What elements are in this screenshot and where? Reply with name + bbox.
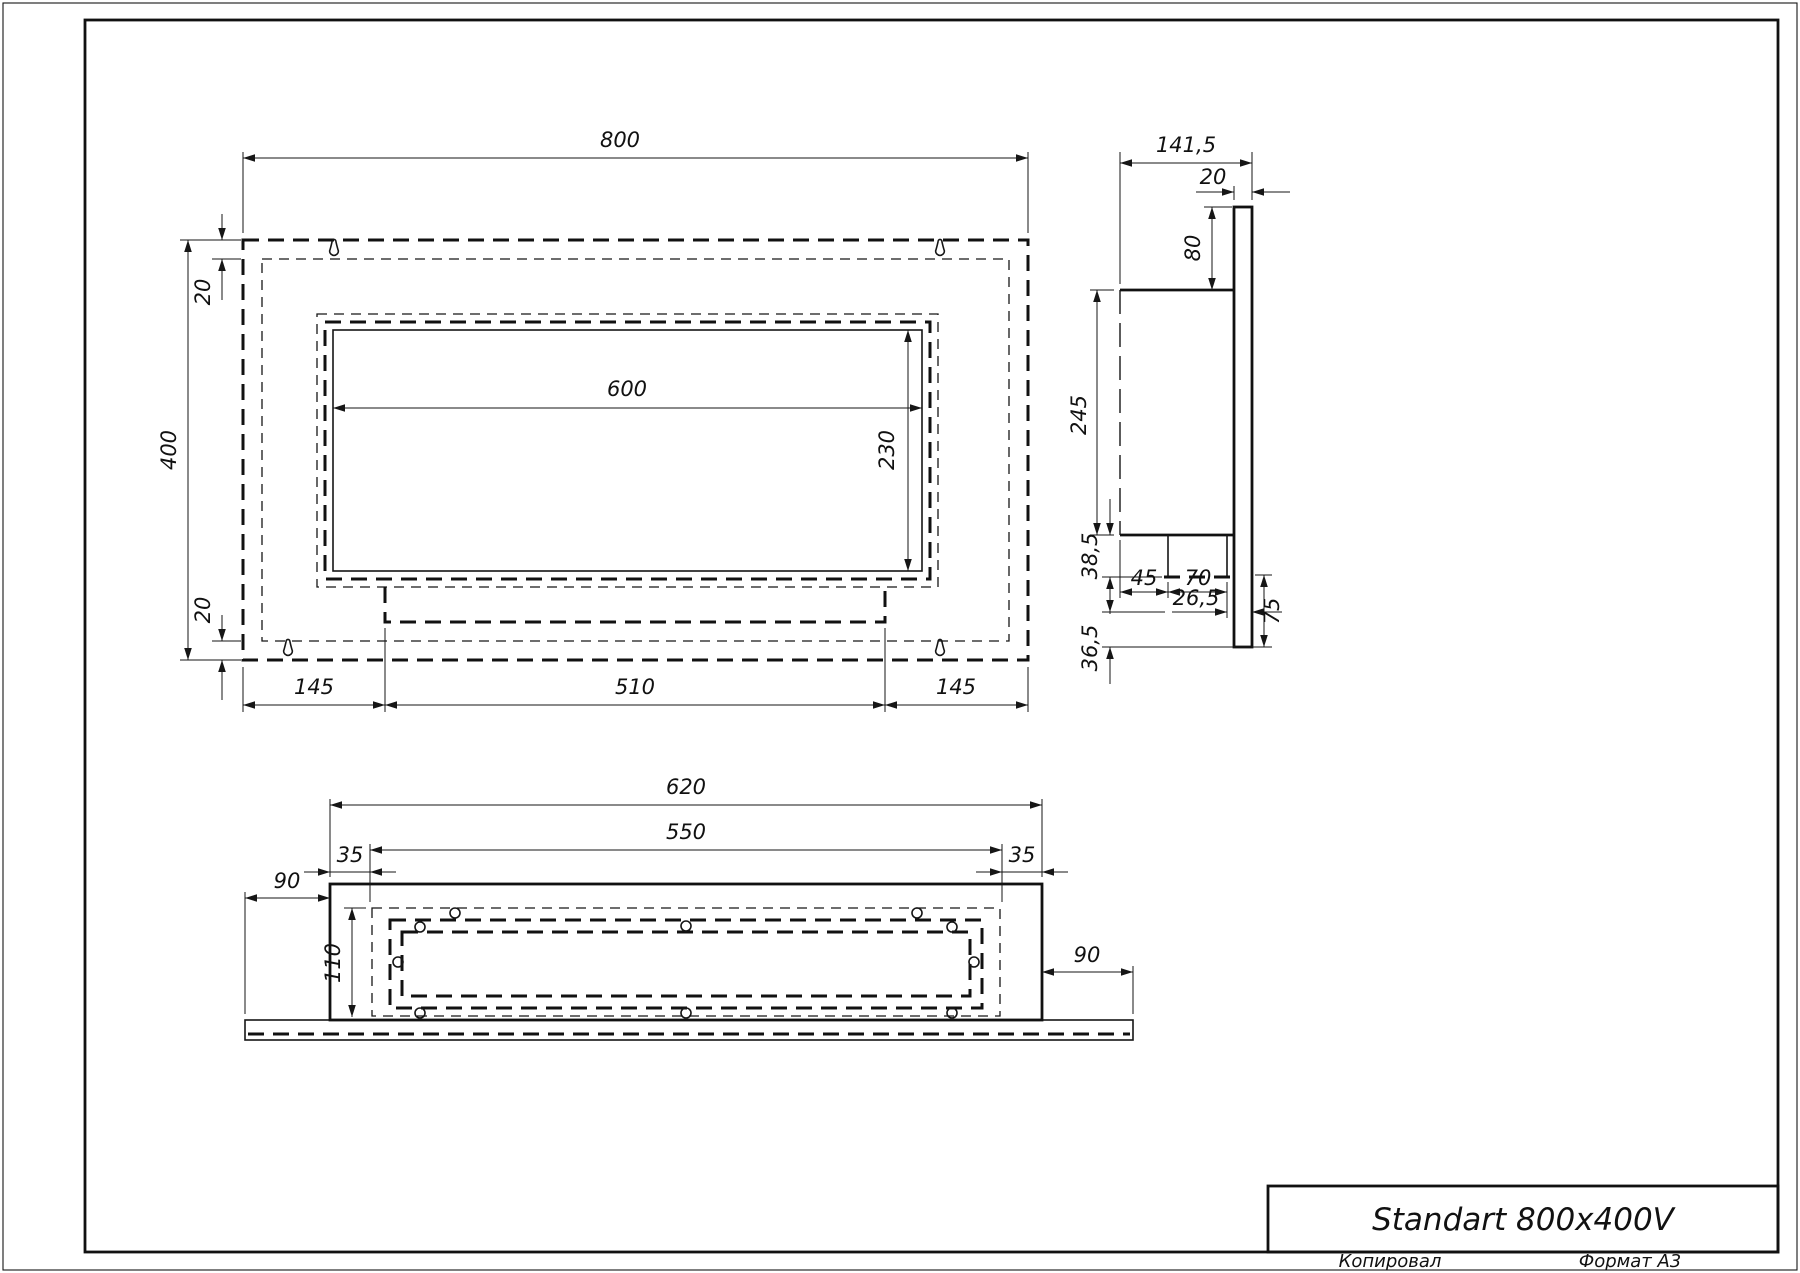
- side-dim-back-gap: 26,5: [1102, 586, 1282, 618]
- front-tank-contour: [385, 587, 885, 622]
- bottom-box-width-label: 620: [666, 775, 706, 799]
- bottom-left-overhang-label: 90: [274, 869, 301, 893]
- bottom-opening-width-label: 550: [666, 820, 706, 844]
- front-opening-outer: [317, 314, 938, 587]
- front-opening-width-label: 600: [607, 377, 647, 401]
- keyhole-top-left-icon: [330, 239, 339, 255]
- front-outer-contour: [243, 240, 1028, 660]
- side-front-gap-label: 45: [1131, 566, 1158, 590]
- drawing-title: Standart 800x400V: [1372, 1202, 1677, 1238]
- drawing-sheet: 800 400 20 20 600: [0, 0, 1800, 1273]
- front-opening-height-label: 230: [875, 430, 899, 470]
- side-body-height-label: 245: [1067, 395, 1091, 435]
- side-bottom-drop-label: 36,5: [1078, 625, 1102, 672]
- front-top-inset-label: 20: [191, 279, 215, 306]
- side-plate-thickness-label: 20: [1200, 165, 1227, 189]
- bottom-dim-depth: 110: [321, 908, 366, 1017]
- copied-by-label: Копировал: [1339, 1251, 1442, 1272]
- front-dim-top-inset: 20: [191, 214, 241, 305]
- front-bottom-inset-label: 20: [191, 597, 215, 624]
- bottom-dim-opening-width: 550: [370, 820, 1002, 902]
- front-height-label: 400: [157, 430, 181, 470]
- front-opening-inner: [333, 330, 922, 571]
- side-depth-label: 141,5: [1156, 133, 1216, 157]
- front-width-label: 800: [600, 128, 640, 152]
- bottom-right-inset-label: 35: [1009, 843, 1036, 867]
- side-wall-plate: [1234, 207, 1252, 647]
- page-border: [3, 3, 1797, 1270]
- bottom-right-overhang-label: 90: [1074, 943, 1101, 967]
- front-view: 800 400 20 20 600: [157, 128, 1028, 712]
- front-right-offset-label: 145: [936, 675, 976, 699]
- keyhole-top-right-icon: [936, 239, 945, 255]
- side-burner-drop-label: 38,5: [1078, 533, 1102, 580]
- bottom-view: 620 550 35 35 90 90: [245, 775, 1133, 1040]
- bottom-dim-left-overhang: 90: [245, 869, 330, 1014]
- bottom-box-contour: [330, 884, 1042, 1020]
- front-left-offset-label: 145: [294, 675, 334, 699]
- side-dim-plate-lower: 75: [1255, 575, 1284, 647]
- bottom-depth-label: 110: [321, 943, 345, 983]
- side-dim-body-height: 245: [1067, 290, 1114, 535]
- technical-drawing: 800 400 20 20 600: [0, 0, 1800, 1273]
- front-dim-opening-height: 230: [875, 330, 908, 571]
- front-opening-mid: [325, 322, 930, 579]
- side-plate-lower-label: 75: [1260, 598, 1284, 625]
- bottom-opening-outer: [372, 908, 1000, 1016]
- keyhole-bottom-right-icon: [936, 639, 945, 655]
- keyhole-bottom-left-icon: [284, 639, 293, 655]
- bottom-screw-holes: [393, 908, 979, 1018]
- side-dim-plate-thickness: 20: [1196, 165, 1290, 200]
- side-back-gap-label: 26,5: [1173, 586, 1220, 610]
- bottom-plate-strip: [245, 1020, 1133, 1040]
- bottom-dim-insets: 35 35: [304, 843, 1068, 872]
- bottom-opening-inner: [402, 932, 970, 996]
- format-label: Формат А3: [1579, 1251, 1682, 1272]
- front-dim-width: 800: [243, 128, 1028, 233]
- side-view: 141,5 20 80 245 38,5: [1067, 133, 1290, 684]
- front-tank-width-label: 510: [615, 675, 655, 699]
- bottom-left-inset-label: 35: [337, 843, 364, 867]
- drawing-frame: [85, 20, 1778, 1252]
- bottom-dim-right-overhang: 90: [1042, 943, 1133, 1014]
- side-top-offset-label: 80: [1181, 235, 1205, 262]
- front-dim-bottom-inset: 20: [191, 597, 241, 700]
- front-dim-opening-width: 600: [333, 377, 922, 408]
- side-dim-top-offset: 80: [1181, 207, 1232, 290]
- title-block: Standart 800x400V: [1268, 1186, 1778, 1252]
